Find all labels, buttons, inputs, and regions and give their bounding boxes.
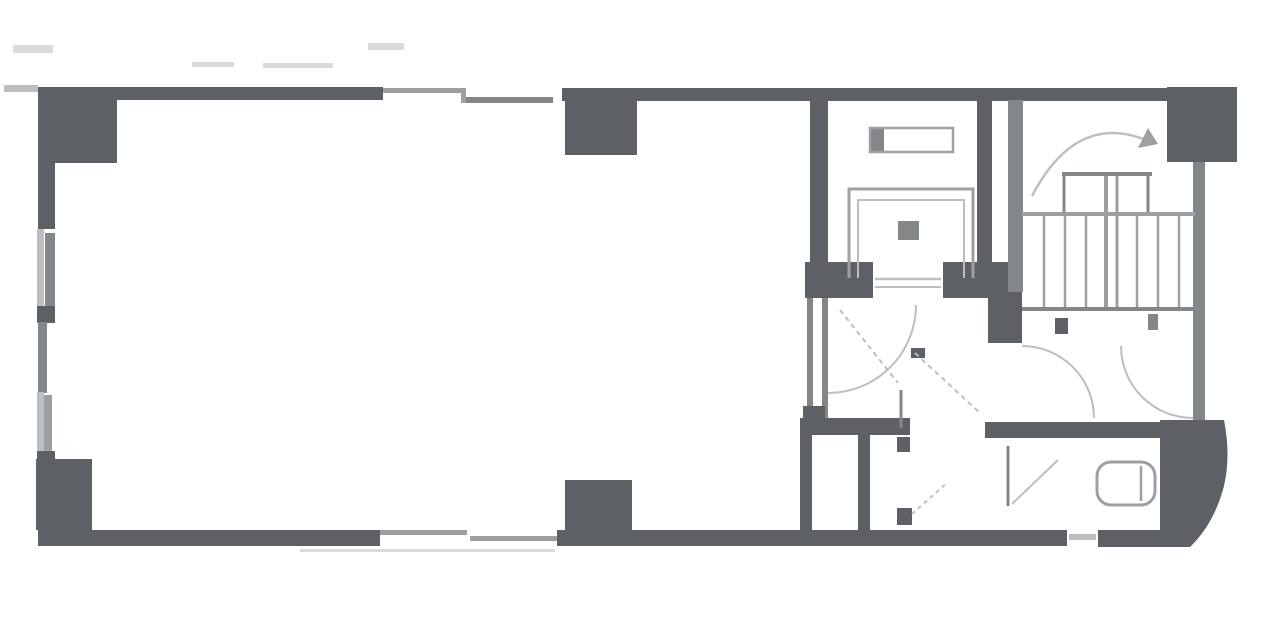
hall-door-arc-right — [1121, 346, 1193, 418]
wall-bathroom-top-right — [985, 422, 1207, 438]
window-bottom-outer — [380, 530, 467, 535]
wall-bottom-right-segment — [1098, 530, 1162, 547]
column-top-middle — [565, 88, 637, 155]
window-left-lower-outer — [37, 392, 44, 456]
hall-door-arc-left — [1022, 346, 1094, 418]
window-bottom-under-line — [300, 549, 555, 552]
counterweight-cap — [870, 128, 884, 152]
window-left-upper-outer — [37, 229, 44, 309]
wall-left-jamb-upper — [37, 306, 55, 323]
floor-plan — [0, 0, 1280, 632]
window-left-upper-inner — [45, 233, 55, 307]
hall-door-b-diagonal — [915, 353, 980, 413]
dimension-mark-1 — [13, 45, 53, 53]
wall-elevator-right — [977, 100, 992, 262]
wall-hall-left-a — [807, 298, 813, 420]
elevator-door-jamb-left — [805, 262, 873, 298]
column-top-right — [1167, 87, 1237, 162]
wall-bathroom-top-left — [800, 418, 910, 435]
window-top-outer — [383, 88, 465, 93]
dimension-mark-4 — [263, 63, 333, 68]
dimension-mark-3 — [192, 62, 234, 67]
stair-door-stub-left — [1055, 318, 1068, 334]
wall-top-right-segment — [562, 88, 1167, 101]
stall-door-swing-2 — [912, 482, 948, 514]
bathroom-partition-top — [897, 437, 910, 452]
balcony-stub-left — [4, 85, 38, 92]
column-bottom-middle — [565, 480, 632, 533]
wall-bottom-vent-line — [1069, 534, 1096, 540]
toilet-bowl — [1097, 462, 1155, 505]
elevator-handle — [898, 221, 919, 240]
stair-arrow-head — [1138, 128, 1158, 148]
window-top-joint — [461, 88, 466, 103]
wall-bathroom-left — [858, 435, 870, 530]
wall-bottom-middle-segment — [557, 530, 1067, 546]
wall-stair-left-block — [988, 292, 1022, 343]
elevator-hall-door-leaf-diagonal — [840, 310, 898, 383]
wall-stair-left — [1008, 100, 1023, 292]
wall-bottom-left-segment — [38, 530, 380, 546]
wall-anteroom-left — [800, 435, 812, 530]
hall-door-stub — [911, 348, 925, 358]
wall-elevator-left — [810, 100, 828, 267]
window-bottom-inner — [470, 536, 557, 541]
window-top-inner — [463, 97, 553, 103]
window-left-lower-inner — [44, 395, 52, 454]
bathroom-corner-block — [1160, 420, 1228, 547]
stair-door-stub-right — [1148, 314, 1158, 330]
wall-right — [1193, 162, 1205, 422]
wall-top-left-segment — [38, 87, 383, 100]
wall-hall-left-b — [822, 298, 828, 420]
wall-left-middle — [38, 322, 47, 393]
bathroom-partition-bottom — [897, 508, 912, 525]
wall-left-upper — [38, 163, 55, 229]
dimension-mark-2 — [368, 43, 404, 50]
stair-direction-arrow — [1032, 133, 1146, 196]
elevator-hall-door-arc — [828, 305, 916, 393]
column-bottom-left — [36, 459, 92, 530]
stall-door-swing — [1012, 460, 1058, 504]
